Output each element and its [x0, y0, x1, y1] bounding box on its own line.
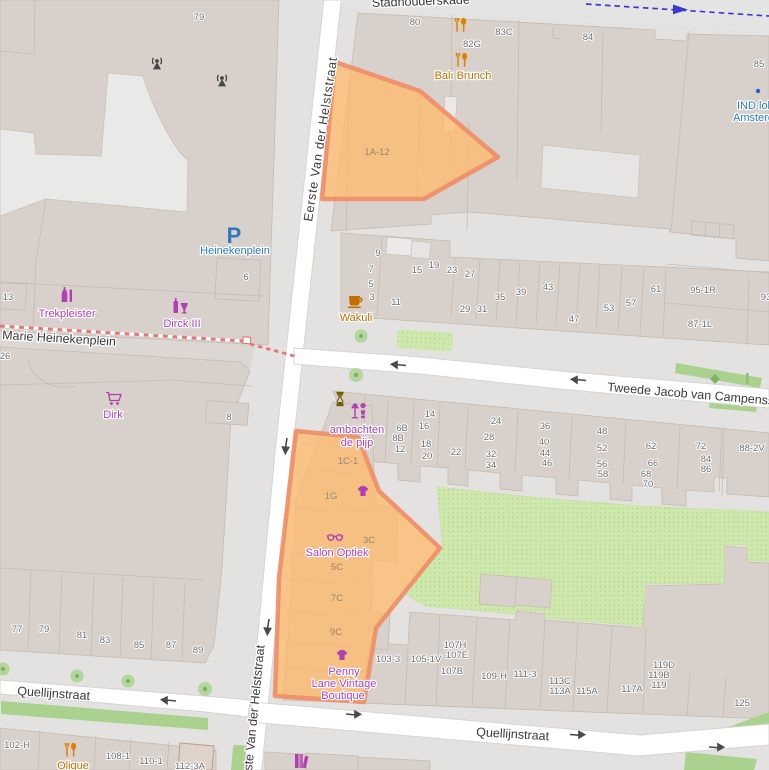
svg-text:1G: 1G: [325, 491, 338, 502]
svg-text:48: 48: [597, 426, 608, 437]
svg-text:15: 15: [412, 265, 423, 276]
svg-text:23: 23: [447, 265, 458, 276]
svg-text:Dirk: Dirk: [103, 409, 123, 421]
svg-text:16: 16: [419, 421, 430, 432]
svg-text:35: 35: [495, 292, 506, 303]
svg-text:de pijp: de pijp: [341, 437, 373, 449]
svg-text:43: 43: [543, 282, 554, 293]
svg-text:53: 53: [604, 303, 615, 314]
svg-text:27: 27: [465, 269, 476, 280]
svg-text:84: 84: [583, 32, 594, 43]
svg-text:86: 86: [701, 464, 712, 475]
svg-text:7: 7: [368, 264, 373, 275]
svg-text:3C: 3C: [363, 535, 375, 546]
svg-text:Wakuli: Wakuli: [340, 312, 373, 324]
svg-text:6: 6: [243, 272, 248, 283]
svg-text:107E: 107E: [446, 650, 468, 661]
svg-text:40: 40: [539, 437, 550, 448]
svg-text:Trekpleister: Trekpleister: [38, 308, 95, 320]
svg-text:Salon Optiek: Salon Optiek: [306, 547, 369, 559]
svg-text:3: 3: [369, 292, 374, 303]
svg-text:32: 32: [486, 449, 497, 460]
svg-text:83C: 83C: [495, 27, 513, 38]
svg-text:95-1R: 95-1R: [690, 285, 716, 296]
svg-text:18: 18: [421, 439, 432, 450]
svg-text:72: 72: [696, 441, 707, 452]
svg-text:87: 87: [166, 640, 177, 651]
svg-text:8: 8: [226, 412, 231, 423]
svg-text:34: 34: [486, 460, 497, 471]
svg-text:58: 58: [598, 469, 609, 480]
svg-text:57: 57: [626, 298, 637, 309]
svg-text:77: 77: [12, 624, 23, 635]
svg-text:9: 9: [375, 248, 380, 259]
svg-text:46: 46: [542, 458, 553, 469]
svg-text:108-1: 108-1: [106, 751, 130, 762]
svg-text:102-H: 102-H: [4, 740, 30, 751]
svg-text:29: 29: [460, 304, 471, 315]
svg-text:115A: 115A: [576, 686, 598, 697]
svg-text:22: 22: [451, 447, 462, 458]
svg-text:Lane Vintage: Lane Vintage: [312, 678, 377, 690]
svg-text:89: 89: [193, 645, 204, 656]
svg-text:52: 52: [597, 443, 608, 454]
svg-text:80: 80: [410, 17, 421, 28]
svg-text:125: 125: [734, 698, 750, 709]
svg-text:85: 85: [134, 640, 145, 651]
svg-text:107B: 107B: [441, 666, 463, 677]
svg-text:111-3: 111-3: [514, 669, 537, 680]
svg-text:88-2V: 88-2V: [739, 443, 765, 454]
svg-text:79: 79: [194, 12, 205, 23]
svg-text:IND loket: IND loket: [737, 100, 769, 112]
svg-text:Amsterdam: Amsterdam: [733, 112, 769, 124]
svg-text:113A: 113A: [549, 686, 571, 697]
svg-text:14: 14: [425, 409, 436, 420]
svg-text:117A: 117A: [621, 684, 643, 695]
svg-text:8B: 8B: [392, 433, 404, 444]
svg-text:105-1V: 105-1V: [411, 654, 442, 665]
svg-text:70: 70: [643, 479, 654, 490]
svg-text:85: 85: [754, 59, 765, 70]
svg-text:Penny: Penny: [328, 666, 360, 678]
svg-text:Heinekenplein: Heinekenplein: [200, 245, 270, 257]
svg-text:26: 26: [0, 351, 10, 362]
svg-text:5: 5: [368, 279, 373, 290]
svg-text:81: 81: [77, 630, 88, 641]
svg-text:112-3A: 112-3A: [175, 761, 206, 770]
svg-text:11: 11: [391, 297, 401, 308]
svg-text:109-H: 109-H: [481, 671, 507, 682]
svg-text:82G: 82G: [463, 39, 481, 50]
svg-text:39: 39: [516, 287, 527, 298]
svg-text:1C-1: 1C-1: [338, 456, 359, 467]
svg-text:13: 13: [3, 292, 14, 303]
svg-text:1A-12: 1A-12: [364, 147, 389, 158]
svg-text:9C: 9C: [330, 627, 342, 638]
svg-text:110-1: 110-1: [139, 756, 163, 767]
svg-text:24: 24: [491, 416, 502, 427]
svg-text:36: 36: [540, 421, 551, 432]
svg-text:20: 20: [422, 451, 433, 462]
svg-text:47: 47: [569, 314, 580, 325]
svg-text:103-3: 103-3: [376, 654, 400, 665]
svg-text:7C: 7C: [331, 593, 343, 604]
svg-text:83: 83: [100, 635, 111, 646]
svg-text:Olique: Olique: [57, 760, 89, 770]
svg-text:ambachten: ambachten: [330, 424, 384, 436]
svg-text:66: 66: [648, 458, 659, 469]
svg-text:79: 79: [39, 624, 50, 635]
svg-text:28: 28: [484, 432, 495, 443]
svg-text:5C: 5C: [331, 562, 343, 573]
svg-text:12: 12: [395, 444, 406, 455]
svg-text:62: 62: [646, 441, 657, 452]
svg-text:87-1L: 87-1L: [688, 319, 712, 330]
svg-text:93: 93: [761, 292, 769, 303]
svg-text:61: 61: [651, 284, 662, 295]
svg-text:31: 31: [477, 304, 488, 315]
svg-text:Dirck III: Dirck III: [163, 318, 200, 330]
svg-text:Balı Brunch: Balı Brunch: [435, 70, 492, 82]
svg-text:Boutique: Boutique: [321, 690, 364, 702]
svg-text:19: 19: [429, 260, 440, 271]
svg-text:119: 119: [651, 680, 666, 691]
